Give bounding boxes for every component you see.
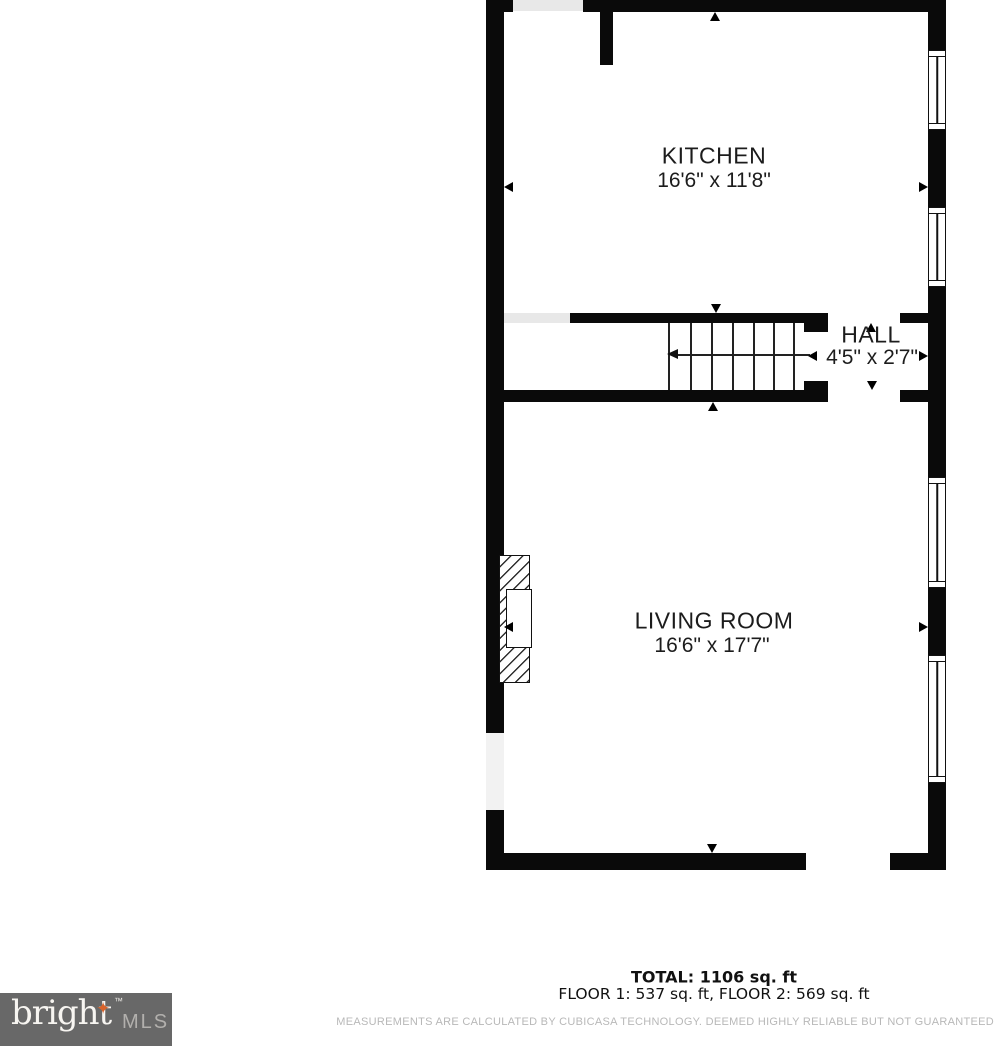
dim-arrow-hall-right-icon xyxy=(919,351,928,361)
door-opening-left xyxy=(486,733,504,810)
wall-right-seg xyxy=(928,588,946,655)
logo-mls-text: MLS xyxy=(122,1011,169,1034)
floor-plan-page: KITCHEN 16'6" x 11'8" HALL 4'5" x 2'7" L… xyxy=(0,0,998,1046)
star-icon: ✦ xyxy=(96,999,110,1019)
stair-tread xyxy=(753,323,755,390)
wall-bottom-left xyxy=(486,853,806,870)
stair-direction-arrow-icon xyxy=(667,349,678,359)
room-dims-kitchen: 16'6" x 11'8" xyxy=(657,169,771,193)
wall-stair-stub-bottom xyxy=(804,381,828,390)
room-label-hall: HALL xyxy=(841,322,901,349)
disclaimer-text: MEASUREMENTS ARE CALCULATED BY CUBICASA … xyxy=(336,1016,994,1028)
wall-top-main xyxy=(583,0,946,12)
total-area-text: TOTAL: 1106 sq. ft xyxy=(631,968,797,987)
dim-arrow-kitchen-right-icon xyxy=(919,182,928,192)
room-label-kitchen: KITCHEN xyxy=(662,143,766,170)
room-dims-hall: 4'5" x 2'7" xyxy=(826,346,918,370)
wall-right-seg xyxy=(928,130,946,207)
stair-tread xyxy=(690,323,692,390)
fireplace-firebox xyxy=(506,589,532,648)
dim-arrow-hall-bottom-icon xyxy=(867,381,877,390)
floor-areas-text: FLOOR 1: 537 sq. ft, FLOOR 2: 569 sq. ft xyxy=(558,985,869,1003)
dim-arrow-hall-left-icon xyxy=(808,351,817,361)
wall-right-seg xyxy=(928,287,946,477)
dim-arrow-living-right-icon xyxy=(919,622,928,632)
stair-direction-line xyxy=(678,354,810,356)
door-threshold-hall xyxy=(504,313,570,323)
dim-arrow-kitchen-top-icon xyxy=(710,12,720,21)
dim-arrow-living-bottom-icon xyxy=(707,844,717,853)
wall-hall-bottom xyxy=(504,390,828,402)
window-living-2 xyxy=(928,655,946,783)
dim-arrow-living-top-icon xyxy=(708,402,718,411)
window-kitchen-2 xyxy=(928,207,946,287)
window-kitchen-1 xyxy=(928,50,946,130)
dim-arrow-living-left-icon xyxy=(504,622,513,632)
wall-stair-stub-top xyxy=(804,323,828,332)
dim-arrow-kitchen-bottom-icon xyxy=(711,304,721,313)
wall-hall-top-right-stub xyxy=(900,313,928,323)
window-living-1 xyxy=(928,477,946,588)
trademark-icon: ™ xyxy=(114,996,123,1006)
door-threshold-top xyxy=(513,0,583,11)
stair-tread xyxy=(793,323,795,390)
wall-hall-top xyxy=(570,313,828,323)
room-label-living-room: LIVING ROOM xyxy=(635,608,794,635)
stair-tread xyxy=(711,323,713,390)
wall-top-left-nub xyxy=(486,0,513,12)
brightmls-logo: bright ✦ ™ MLS xyxy=(0,993,172,1046)
wall-right-seg xyxy=(928,0,946,50)
stair-tread xyxy=(732,323,734,390)
wall-stub-interior-top xyxy=(600,12,613,65)
stair-tread xyxy=(773,323,775,390)
wall-hall-bottom-right-stub xyxy=(900,390,928,402)
wall-bottom-right xyxy=(890,853,946,870)
room-dims-living-room: 16'6" x 17'7" xyxy=(654,634,769,658)
dim-arrow-kitchen-left-icon xyxy=(504,182,513,192)
